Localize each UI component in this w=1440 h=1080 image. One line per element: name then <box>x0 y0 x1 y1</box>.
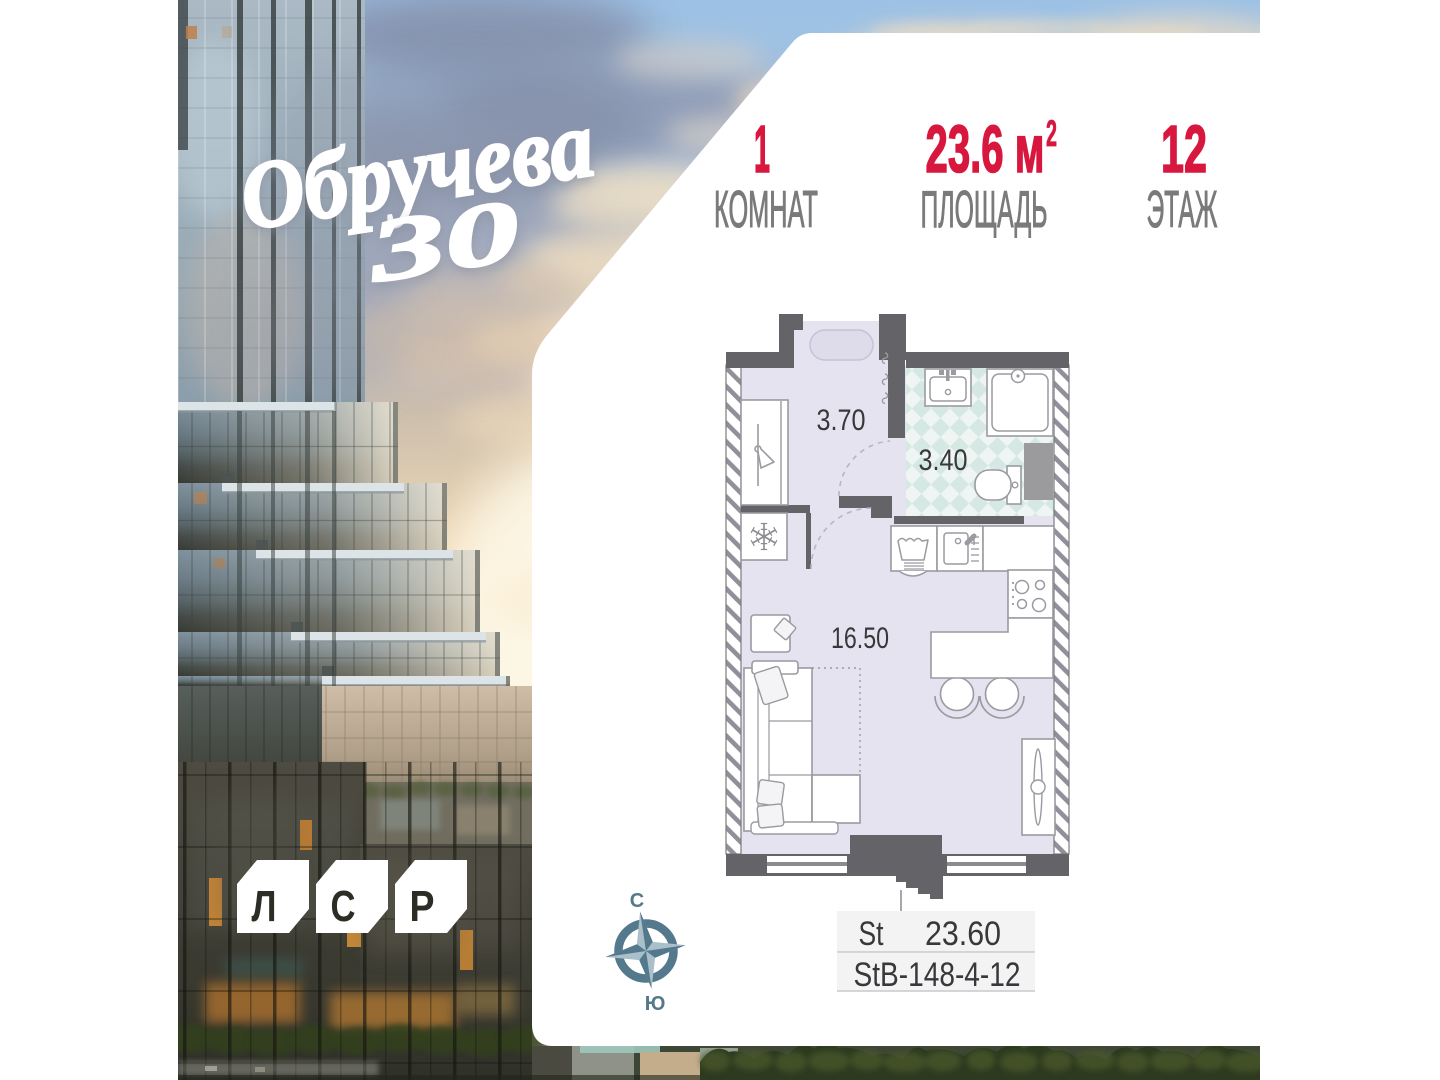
svg-text:23.6 м: 23.6 м <box>926 112 1045 187</box>
svg-text:Л: Л <box>252 882 277 931</box>
svg-text:КОМНАТ: КОМНАТ <box>714 181 818 239</box>
svg-text:12: 12 <box>1161 112 1207 187</box>
svg-text:Р: Р <box>410 882 435 931</box>
svg-text:16.50: 16.50 <box>831 622 889 655</box>
svg-text:3.70: 3.70 <box>817 404 866 437</box>
svg-text:ПЛОЩАДЬ: ПЛОЩАДЬ <box>921 181 1048 239</box>
svg-text:3.40: 3.40 <box>919 444 968 477</box>
svg-text:С: С <box>630 890 644 912</box>
svg-text:2: 2 <box>1046 113 1057 154</box>
svg-text:St: St <box>859 915 884 953</box>
svg-text:С: С <box>331 882 356 931</box>
svg-text:ЭТАЖ: ЭТАЖ <box>1147 181 1218 239</box>
svg-text:Ю: Ю <box>645 993 666 1015</box>
svg-text:1: 1 <box>754 112 770 187</box>
svg-text:StB-148-4-12: StB-148-4-12 <box>854 956 1021 994</box>
svg-text:23.60: 23.60 <box>925 915 1001 953</box>
